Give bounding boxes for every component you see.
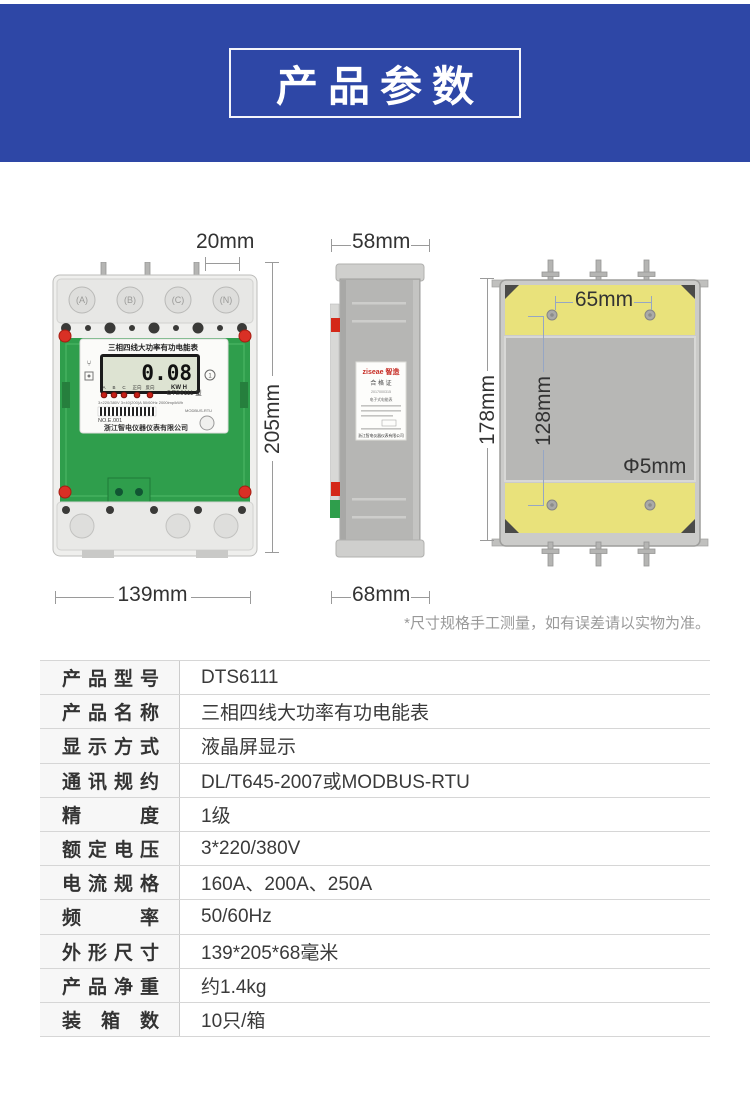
spec-row-4: 精度1级 [40,798,710,832]
spec-value: 160A、200A、250A [180,866,710,899]
spec-label: 电流规格 [40,866,180,899]
spec-value: 约1.4kg [180,969,710,1002]
spec-label: 频率 [40,900,180,933]
spec-table: 产品型号DTS6111产品名称三相四线大功率有功电能表显示方式液晶屏显示通讯规约… [40,660,710,1037]
svg-text:正向: 正向 [133,384,142,390]
svg-text:B: B [112,385,115,390]
side-bottom-cap [336,540,424,557]
spec-label-text: 装箱数 [62,1006,159,1033]
terminal-label-a: (A) [76,295,88,305]
dim-hole-pitch-h: 65mm [574,288,634,312]
spec-row-2: 显示方式液晶屏显示 [40,729,710,763]
back-yellow-bottom [505,483,695,533]
brand-logo: ziseae 智造 [363,367,401,376]
side-red-clip-bottom [331,482,340,496]
cert-item: 电子式电能表 [370,397,393,402]
spec-value: 1级 [180,798,710,831]
pulse-icon: ⑂ [87,359,92,368]
spec-label-text: 外形尺寸 [62,938,159,965]
dim-hole-dia: Φ5mm [623,455,686,479]
spec-value: 10只/箱 [180,1003,710,1036]
spec-label-text: 显示方式 [62,732,159,759]
spec-label: 精度 [40,798,180,831]
spec-row-8: 外形尺寸139*205*68毫米 [40,935,710,969]
spec-label-text: 频率 [62,903,159,930]
side-cover-edge [330,304,339,510]
meter-front-view: (A) (B) (C) (N) [52,262,258,558]
serial-no: NO.E.001 [98,418,122,424]
spec-label-text: 精度 [62,801,159,828]
side-green-clip [330,500,340,518]
spec-label: 产品型号 [40,661,180,694]
spec-value: 三相四线大功率有功电能表 [180,695,710,728]
dim-top-pitch: 20mm [196,230,254,254]
face-button [200,416,214,430]
dim-depth-base: 68mm [352,583,410,607]
spec-label: 产品名称 [40,695,180,728]
spec-label: 通讯规约 [40,764,180,797]
terminal-label-c: (C) [172,295,185,305]
spec-value: 3*220/380V [180,832,710,865]
front-foot-left [82,550,114,558]
front-foot-right [196,550,228,558]
dim-height-back: 178mm [476,370,500,450]
faceplate-title: 三相四线大功率有功电能表 [108,342,198,352]
spec-row-7: 频率50/60Hz [40,900,710,934]
dim-height-front: 205mm [261,379,285,459]
header-banner: 产品参数 [0,4,750,162]
spec-value: 液晶屏显示 [180,729,710,762]
company-name: 浙江智电仪器仪表有限公司 [104,423,188,432]
side-red-clip-top [331,318,340,332]
side-cert-label: ziseae 智造 合 格 证 2017000315 电子式电能表 浙江智电仪器… [356,362,406,440]
cert-title: 合 格 证 [370,379,391,387]
spec-row-9: 产品净重约1.4kg [40,969,710,1003]
meter-side-view: ziseae 智造 合 格 证 2017000315 电子式电能表 浙江智电仪器… [330,262,430,558]
svg-text:A: A [102,385,105,390]
terminal-label-n: (N) [220,295,233,305]
spec-label: 装箱数 [40,1003,180,1036]
tiny-comm-line: MODBUS-RTU [185,408,212,413]
spec-row-0: 产品型号DTS6111 [40,661,710,695]
spec-label: 显示方式 [40,729,180,762]
spec-row-3: 通讯规约DL/T645-2007或MODBUS-RTU [40,764,710,798]
dim-depth-body: 58mm [352,230,410,254]
spec-label-text: 额定电压 [62,835,159,862]
cert-company: 浙江智电仪器仪表有限公司 [358,433,404,438]
spec-label: 额定电压 [40,832,180,865]
spec-value: DTS6111 [180,661,710,694]
spec-label-text: 产品净重 [62,972,159,999]
side-top-cap [336,264,424,281]
barcode [98,407,156,416]
terminal-label-b: (B) [124,295,136,305]
spec-row-5: 额定电压3*220/380V [40,832,710,866]
spec-label-text: 产品名称 [62,698,159,725]
spec-row-1: 产品名称三相四线大功率有功电能表 [40,695,710,729]
spec-label: 产品净重 [40,969,180,1002]
lcd-value: 0.08 [141,361,192,385]
page-title: 产品参数 [266,53,484,114]
spec-label-text: 产品型号 [62,664,159,691]
measurement-note: *尺寸规格手工测量，如有误差请以实物为准。 [404,612,710,633]
product-parameter-page: 产品参数 (A) [0,0,750,1110]
spec-label-text: 电流规格 [62,869,159,896]
spec-label: 外形尺寸 [40,935,180,968]
spec-value: 139*205*68毫米 [180,935,710,968]
svg-text:反向: 反向 [146,384,155,391]
spec-value: DL/T645-2007或MODBUS-RTU [180,764,710,797]
spec-row-6: 电流规格160A、200A、250A [40,866,710,900]
model-label: DTS6111 型 [167,388,202,397]
dim-hole-pitch-v: 128mm [532,371,556,451]
spec-label-text: 通讯规约 [62,767,159,794]
dim-width-front: 139mm [115,583,190,607]
spec-value: 50/60Hz [180,900,710,933]
page-title-box: 产品参数 [229,48,521,118]
tiny-spec-line: 3×220/380V 3×40(200)A 50/60Hz 2000imp/kW… [98,400,183,405]
cert-no: 2017000315 [371,390,391,394]
spec-row-10: 装箱数10只/箱 [40,1003,710,1037]
